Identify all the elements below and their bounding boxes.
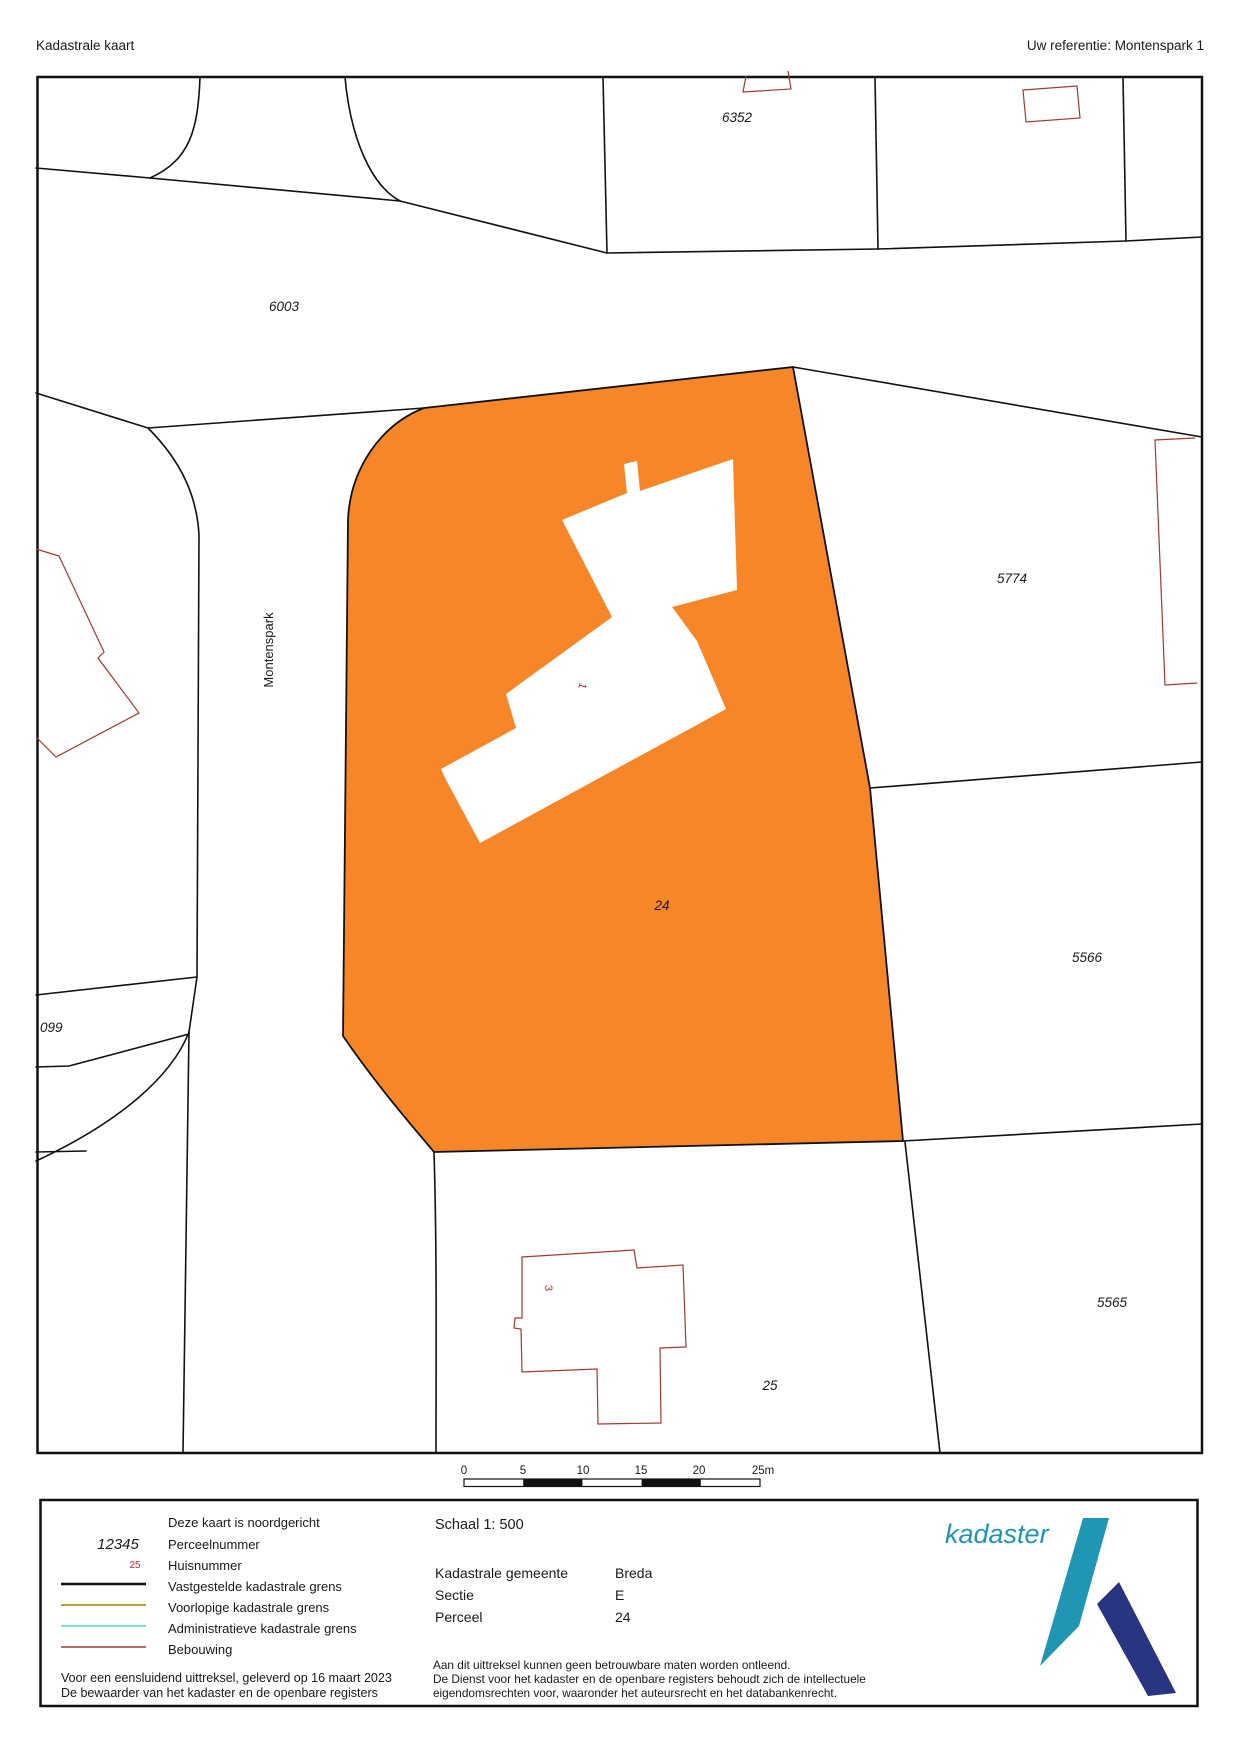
legend-label-housenumber: Huisnummer xyxy=(168,1558,242,1573)
legend-symbol-housenumber: 25 xyxy=(129,1560,141,1571)
parcel-label-25: 25 xyxy=(761,1378,778,1393)
detail-label-sectie: Sectie xyxy=(435,1587,474,1603)
detail-value-perceel: 24 xyxy=(615,1609,631,1625)
bottom-left-parcel-line xyxy=(36,1151,86,1152)
legend-footer-line2: De bewaarder van het kadaster en de open… xyxy=(61,1686,378,1700)
scale-text: Schaal 1: 500 xyxy=(435,1517,524,1533)
parcel-label-5774: 5774 xyxy=(997,571,1027,586)
legend-label-parcelnumber: Perceelnummer xyxy=(168,1537,260,1552)
street-label-montenspark: Montenspark xyxy=(261,612,276,688)
scale-tick-15: 15 xyxy=(635,1465,648,1477)
detail-value-gemeente: Breda xyxy=(615,1565,653,1581)
parcel-label-5566: 5566 xyxy=(1072,950,1103,965)
scale-tick-25m: 25m xyxy=(752,1465,774,1477)
kadastral-map-page: Kadastrale kaart Uw referentie: Montensp… xyxy=(0,0,1240,1755)
parcel-label-099: 099 xyxy=(40,1020,63,1035)
disclaimer-line1: Aan dit uittreksel kunnen geen betrouwba… xyxy=(433,1658,790,1672)
scale-tick-0: 0 xyxy=(461,1465,467,1477)
reference-text: Uw referentie: Montenspark 1 xyxy=(1027,38,1204,53)
parcel-label-5565: 5565 xyxy=(1097,1295,1128,1310)
page-title: Kadastrale kaart xyxy=(36,38,135,53)
detail-label-perceel: Perceel xyxy=(435,1609,482,1625)
kadaster-logo-text: kadaster xyxy=(945,1519,1050,1549)
legend-label-bebouwing: Bebouwing xyxy=(168,1642,232,1657)
parcel-label-24: 24 xyxy=(653,898,669,913)
scale-bar-track xyxy=(464,1479,760,1487)
parcel-label-6003: 6003 xyxy=(269,299,300,314)
parcel-label-6352: 6352 xyxy=(722,110,753,125)
disclaimer-line3: eigendomsrechten voor, waaronder het aut… xyxy=(433,1686,837,1700)
scale-bar: 0 5 10 15 20 25m xyxy=(461,1465,774,1487)
detail-label-gemeente: Kadastrale gemeente xyxy=(435,1565,568,1581)
scale-tick-5: 5 xyxy=(520,1465,526,1477)
legend-label-voorlopig: Voorlopige kadastrale grens xyxy=(168,1600,330,1615)
legend-symbol-parcelnumber: 12345 xyxy=(97,1536,139,1553)
legend-label-administratief: Administratieve kadastrale grens xyxy=(168,1621,357,1636)
house-number-3: 3 xyxy=(542,1285,554,1291)
legend-north-note: Deze kaart is noordgericht xyxy=(168,1515,320,1530)
legend-label-vastgesteld: Vastgestelde kadastrale grens xyxy=(168,1579,342,1594)
scale-tick-10: 10 xyxy=(577,1465,590,1477)
legend-footer-line1: Voor een eensluidend uittreksel, gelever… xyxy=(61,1671,392,1685)
detail-value-sectie: E xyxy=(615,1587,624,1603)
scale-tick-20: 20 xyxy=(693,1465,706,1477)
scale-bar-segment-dark-2 xyxy=(642,1479,701,1487)
scale-bar-segment-dark-1 xyxy=(523,1479,582,1487)
disclaimer-line2: De Dienst voor het kadaster en de openba… xyxy=(433,1672,866,1686)
